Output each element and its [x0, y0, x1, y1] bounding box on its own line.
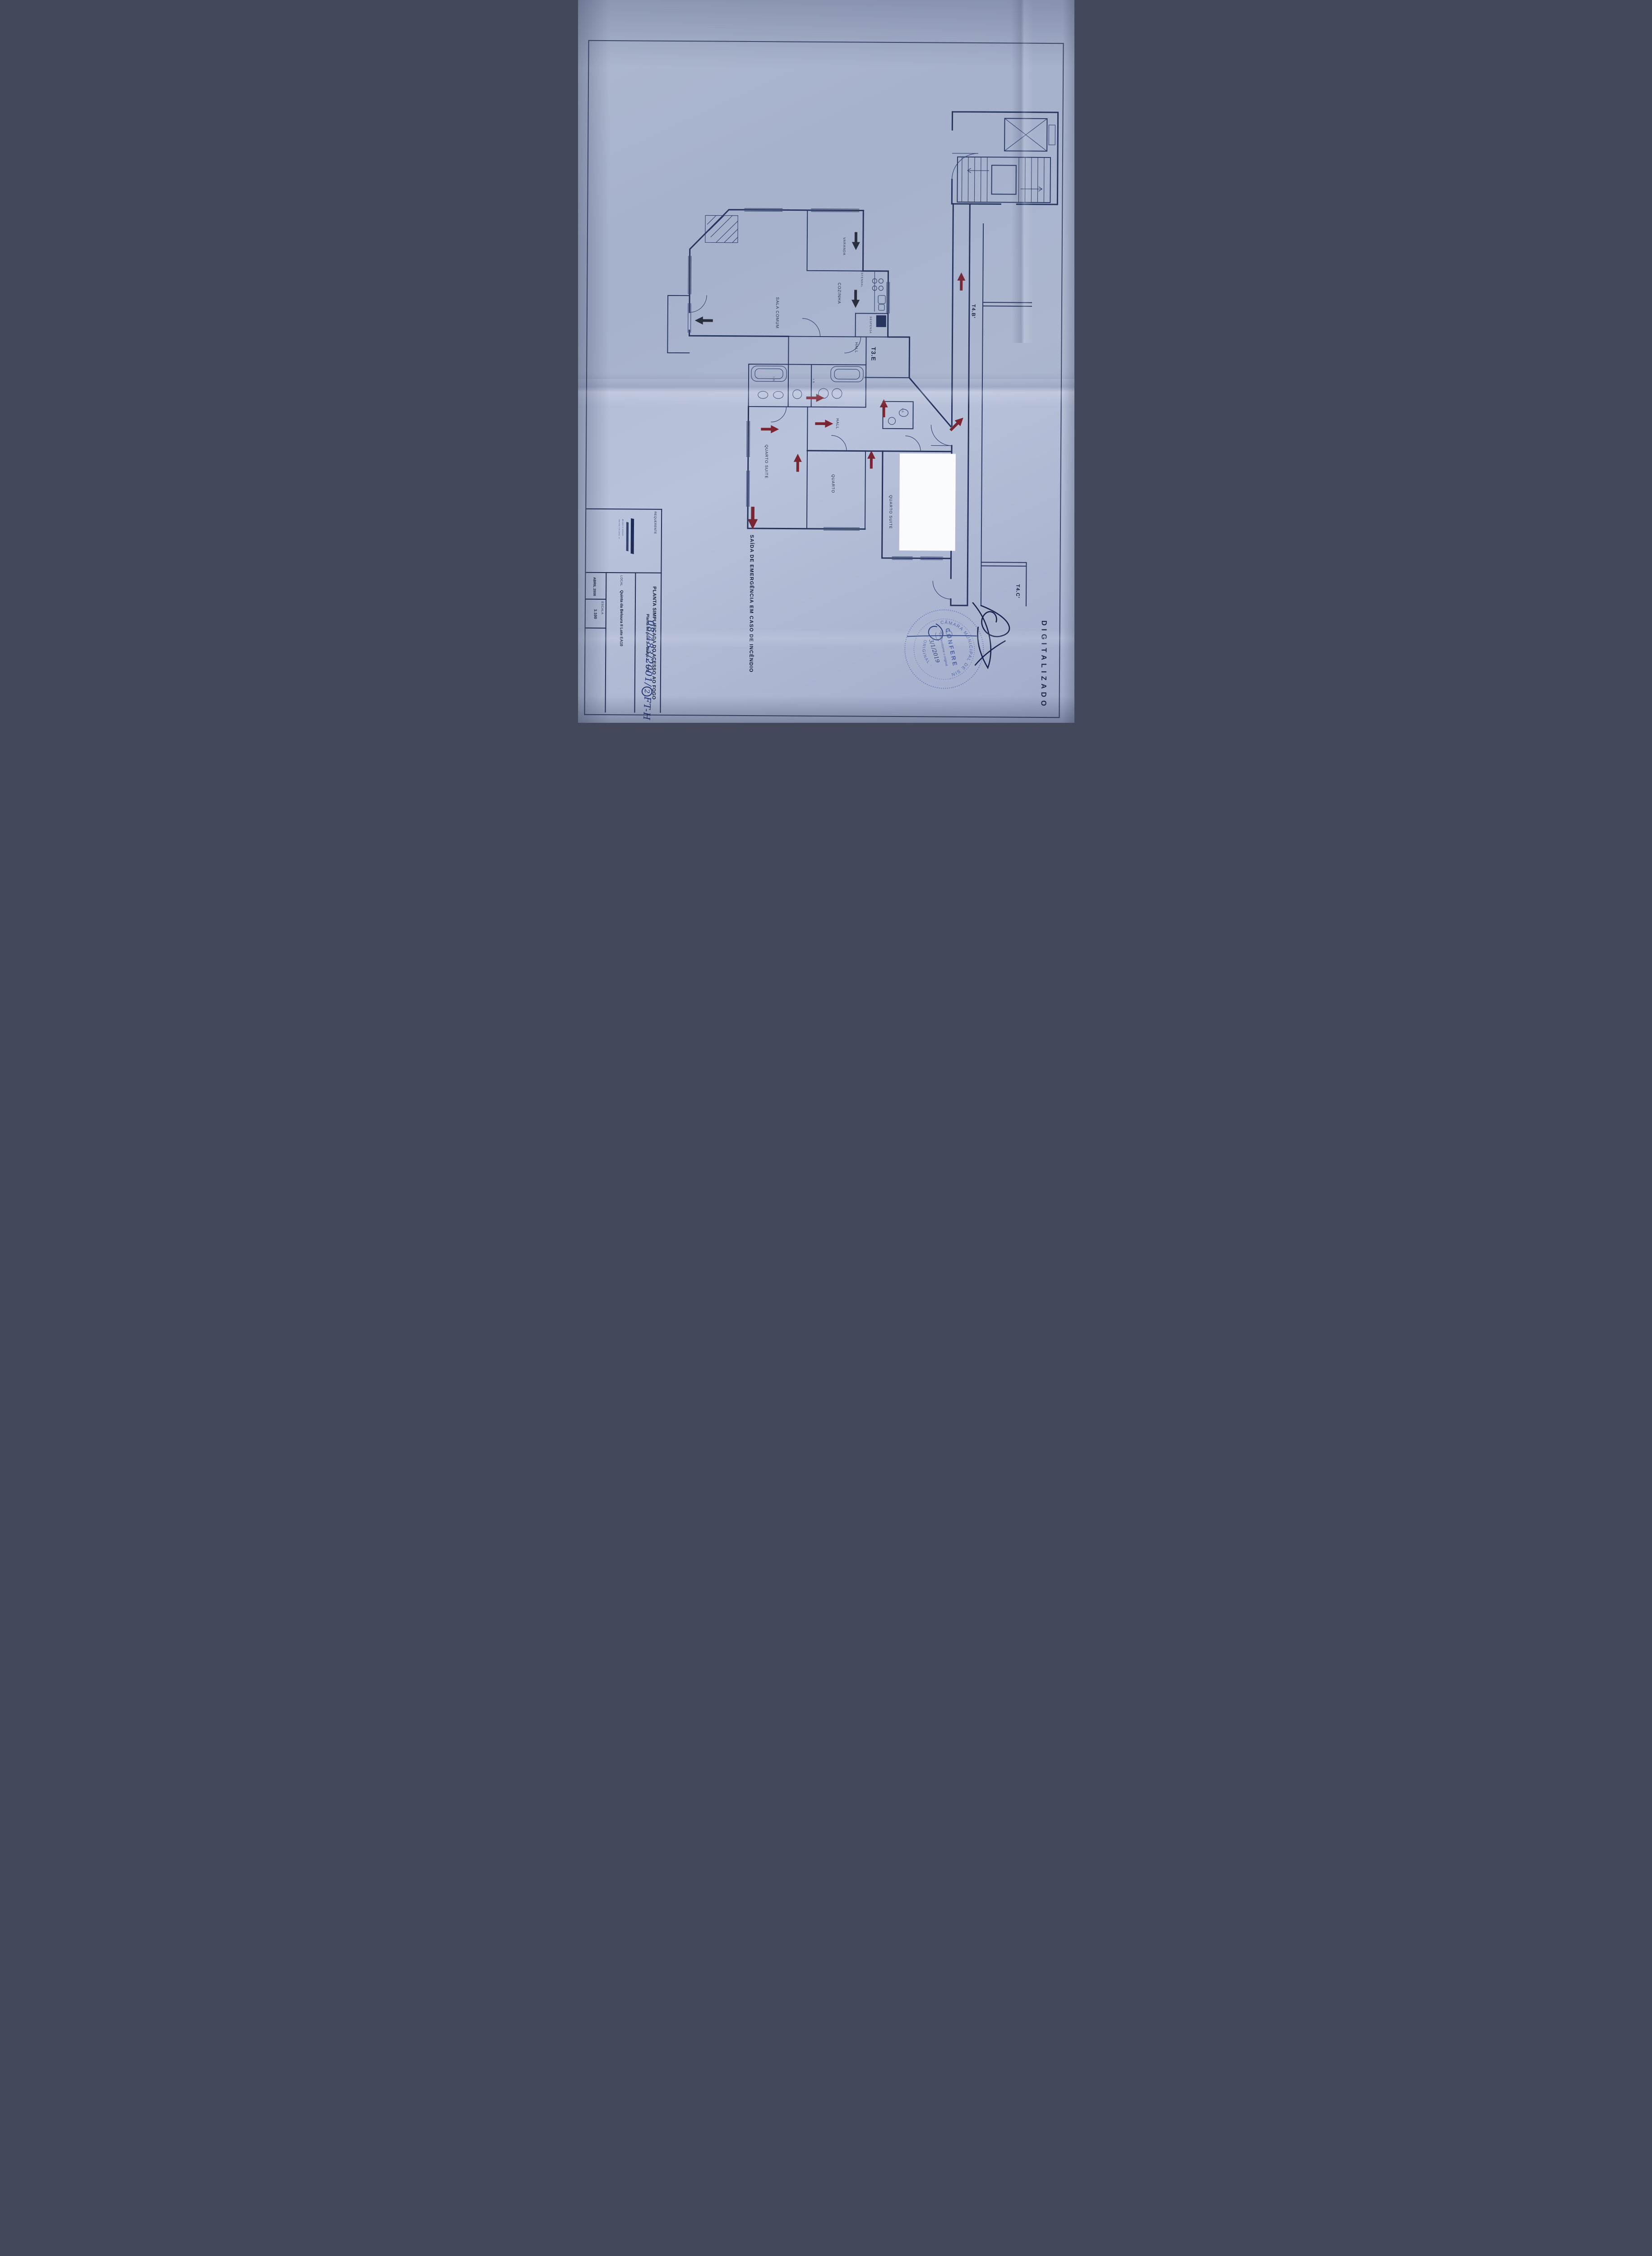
- white-redaction-patch: [899, 453, 955, 551]
- room-label-despensa: DESPENSA: [869, 317, 871, 334]
- room-label-is3: I.S.: [901, 408, 903, 414]
- room-label-is2: I.S.: [811, 379, 814, 384]
- local-label: LOCAL: [620, 575, 623, 586]
- neighbor-label-t4b: T4.B': [970, 304, 976, 319]
- scale-value: 1:100: [593, 601, 597, 627]
- arrow-suite2: [867, 451, 875, 469]
- scale-cell: ESCALA 1:100: [593, 601, 603, 627]
- arrow-sala-hall: [806, 394, 824, 402]
- room-label-sala: SALA COMUM: [775, 297, 779, 328]
- requerente-cell: REQUERENTE: [652, 512, 660, 534]
- neighbor-label-t4c: T4.C': [1015, 584, 1020, 599]
- room-label-varanda: VARANDA: [842, 237, 845, 255]
- room-label-quarto: QUARTO: [831, 474, 835, 493]
- arrow-emergency-note: [747, 507, 758, 529]
- requerente-label: REQUERENTE: [653, 512, 656, 534]
- scale-label: ESCALA: [600, 601, 603, 627]
- room-label-hall1: HALL: [854, 342, 858, 353]
- room-label-quarto-suite2: QUARTO SUITE: [888, 495, 893, 529]
- arrow-balcony: [851, 232, 860, 250]
- rotated-drawing-content: SALA COMUM COZINHA HALL HALL QUARTO SUIT…: [585, 41, 1061, 715]
- kitchen-fixtures: [872, 271, 886, 327]
- arrow-quarto: [793, 454, 801, 472]
- date-cell: ABRIL 2008: [591, 574, 599, 599]
- stove-black: [876, 315, 886, 327]
- room-label-is1: I.S.: [772, 377, 774, 382]
- arrow-corridor: [957, 273, 965, 291]
- handwritten-ref-circled: 2: [641, 686, 652, 697]
- scanned-floor-plan-photo: SALA COMUM COZINHA HALL HALL QUARTO SUIT…: [578, 0, 1074, 723]
- emergency-note-text: SAÍDA DE EMERGÊNCIA EM CASO DE INCÊNDIO: [748, 535, 755, 673]
- staircase: [957, 157, 1050, 203]
- local-value: Quinta da Beloura II Lote EA10: [619, 590, 624, 646]
- signature-scribble: [960, 597, 1019, 675]
- shadow-right: [1063, 0, 1074, 723]
- unit-label-t3e: T3.E: [870, 347, 877, 361]
- drawing-sheet-frame: SALA COMUM COZINHA HALL HALL QUARTO SUIT…: [584, 40, 1064, 718]
- arrow-kitchen: [851, 290, 859, 308]
- arrow-porch-exit: [694, 316, 713, 324]
- date-value: ABRIL 2008: [592, 577, 597, 596]
- digitalizado-watermark: DIGITALIZADO: [1039, 620, 1047, 709]
- stamp-handwritten-date: 3/1/2019: [928, 638, 941, 664]
- local-cell: LOCAL Quinta da Beloura II Lote EA10: [617, 575, 626, 711]
- room-label-estendal: ESTENDAL: [860, 271, 863, 287]
- room-label-quarto-suite1: QUARTO SUITE: [764, 444, 768, 479]
- stair-core: [952, 112, 1058, 204]
- room-label-hall2: HALL: [835, 418, 839, 429]
- handwritten-ref-part2: FT-H: [641, 696, 652, 721]
- arrow-entry: [947, 415, 966, 433]
- arrow-hall: [815, 420, 833, 428]
- arrow-suite1: [761, 425, 779, 433]
- room-label-cozinha: COZINHA: [837, 282, 842, 304]
